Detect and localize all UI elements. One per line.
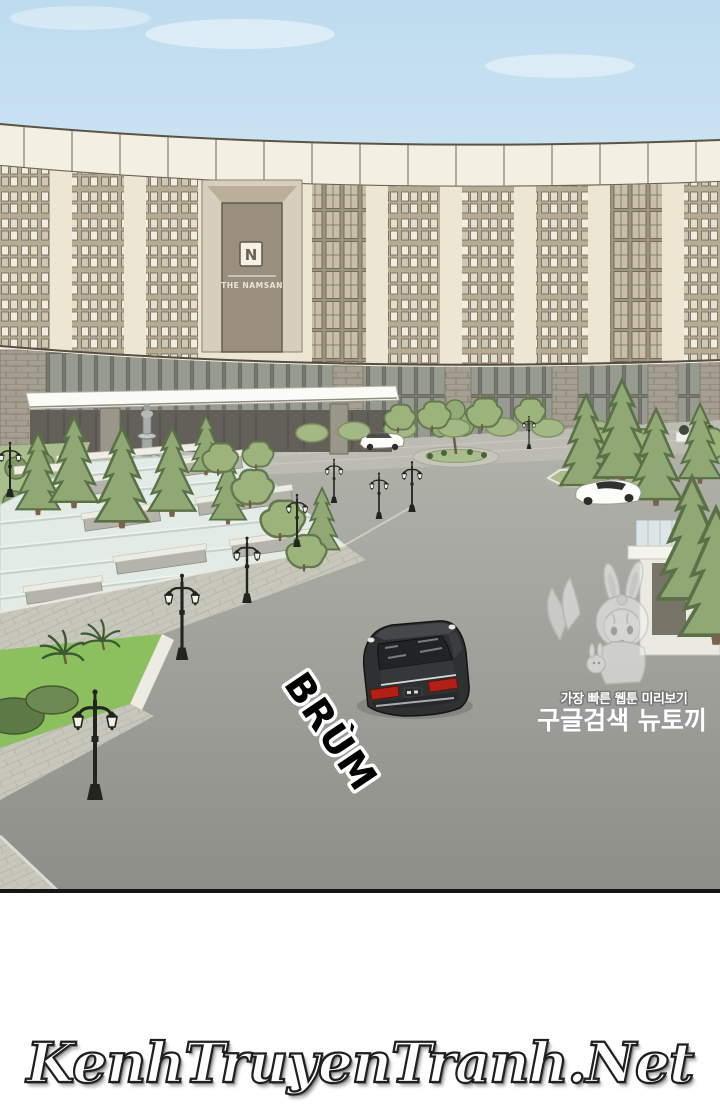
window-column xyxy=(536,160,588,372)
cloud xyxy=(145,19,335,49)
sign-panel xyxy=(222,203,282,352)
black-sedan xyxy=(357,621,473,719)
window-column xyxy=(72,160,124,372)
tall-window-column xyxy=(312,160,366,372)
wheel xyxy=(392,444,398,450)
window-column xyxy=(462,160,514,372)
hotel-sign-tower: N THE NAMSAN xyxy=(202,180,302,352)
cloud xyxy=(485,54,635,78)
side-mirror xyxy=(368,638,375,643)
shrub xyxy=(679,425,689,435)
white-shuttle-car xyxy=(360,433,404,450)
wheel xyxy=(584,497,593,505)
comic-panel-illustration: N THE NAMSAN xyxy=(0,0,720,893)
cloud xyxy=(10,6,150,30)
window-column xyxy=(684,160,720,372)
tall-window-column xyxy=(610,160,662,372)
shrub-tuft xyxy=(467,449,473,455)
wheel xyxy=(625,494,634,502)
hedge xyxy=(26,686,78,714)
hotel-logo-letter: N xyxy=(245,246,258,264)
facade-floors xyxy=(0,160,720,372)
license-plate xyxy=(404,688,422,697)
side-mirror xyxy=(449,625,456,630)
shrub-mound xyxy=(296,424,328,442)
eye xyxy=(627,626,633,635)
shrub-tuft xyxy=(427,453,433,459)
body xyxy=(600,642,646,684)
site-watermark-text: KenhTruyenTranh.Net xyxy=(0,1030,720,1095)
shrub-tuft xyxy=(481,452,487,458)
window-column xyxy=(0,160,50,372)
watermark-sitename: 구글검색 뉴토끼 xyxy=(537,706,707,735)
eye xyxy=(611,627,617,636)
webtoon-page: N THE NAMSAN xyxy=(0,0,720,1113)
hotel-sign-text: THE NAMSAN xyxy=(221,281,283,290)
plush-bunny xyxy=(587,655,605,673)
panel-bottom-border xyxy=(0,889,720,893)
window-column xyxy=(146,160,198,372)
shrub-tuft xyxy=(441,450,447,456)
watermark-tagline: 가장 빠른 웹툰 미리보기 xyxy=(561,691,688,707)
window-column xyxy=(388,160,440,372)
wheel xyxy=(367,444,373,450)
